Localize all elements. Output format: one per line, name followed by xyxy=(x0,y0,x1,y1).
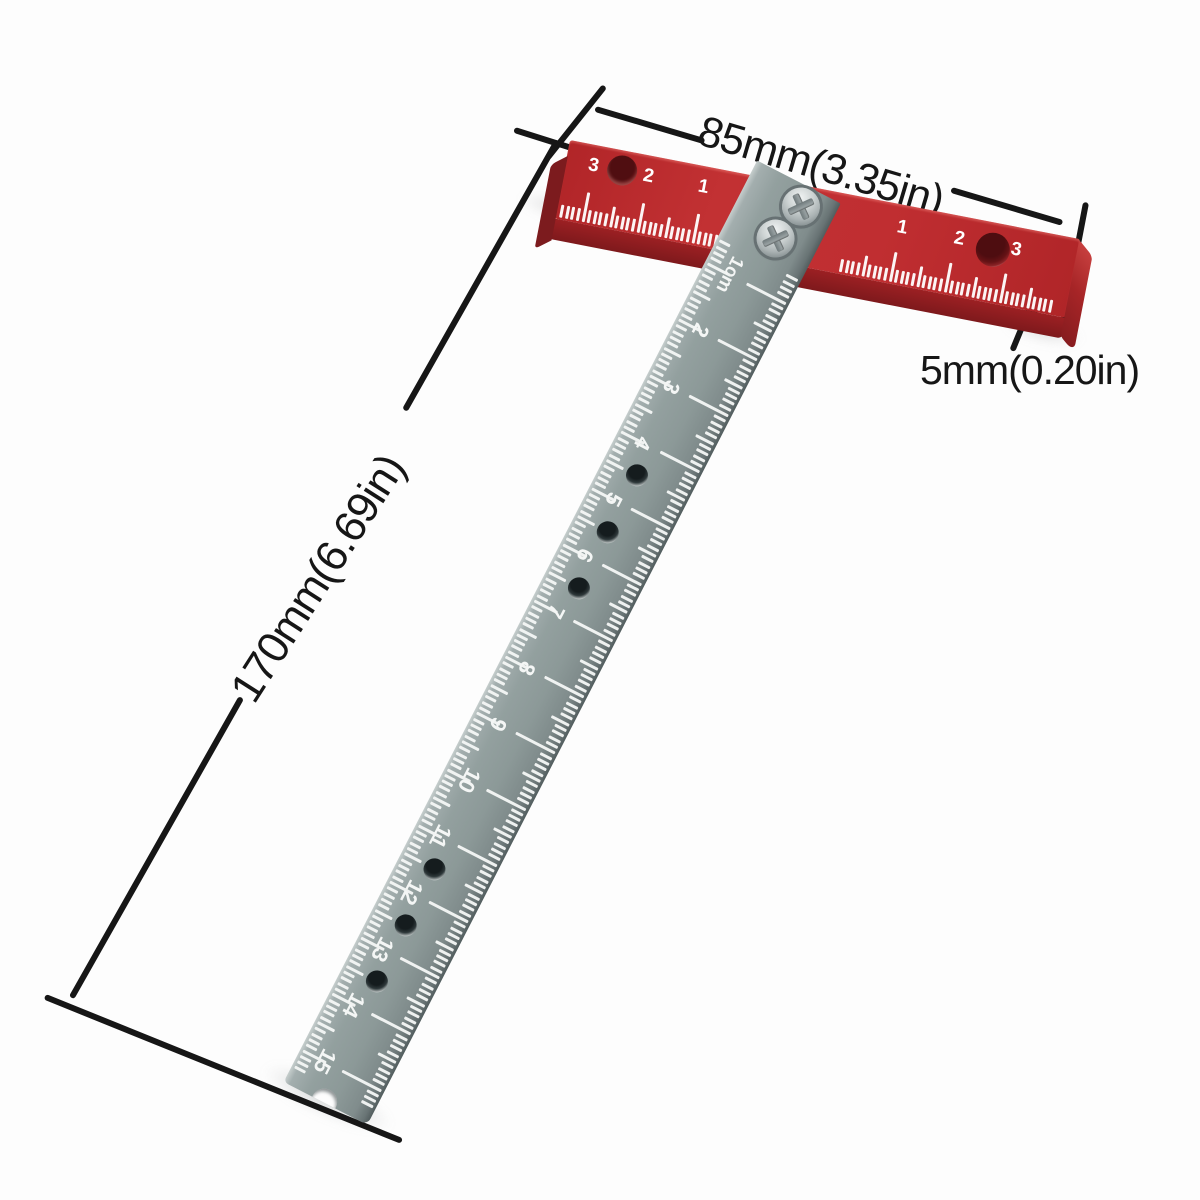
crossbar-tick xyxy=(675,227,680,240)
crossbar-scale-number: 1 xyxy=(895,216,910,240)
crossbar-tick xyxy=(976,286,981,299)
crossbar-tick xyxy=(850,261,855,274)
crossbar-tick xyxy=(877,266,882,279)
crossbar-tick xyxy=(587,210,592,223)
crossbar-tick xyxy=(620,216,625,229)
crossbar-tick xyxy=(680,228,685,241)
crossbar-tick xyxy=(592,211,597,224)
crossbar-tick xyxy=(866,264,871,277)
crossbar-tick xyxy=(642,221,647,234)
blade-hole xyxy=(391,911,421,941)
crossbar-tick xyxy=(1015,293,1020,306)
length-dim-line-upper xyxy=(402,139,560,412)
crossbar-tick xyxy=(1042,299,1047,312)
blade-hole xyxy=(593,517,623,547)
crossbar-tick xyxy=(905,272,910,285)
crossbar-tick xyxy=(686,229,691,242)
crossbar-tick xyxy=(883,268,888,281)
crossbar-tick xyxy=(653,223,658,236)
blade-tick-left xyxy=(294,1066,306,1074)
crossbar-tick xyxy=(647,222,652,235)
crossbar-tick xyxy=(894,270,899,283)
crossbar-tick xyxy=(708,233,713,246)
crossbar-tick xyxy=(669,226,674,239)
crossbar-tick xyxy=(960,282,965,295)
crossbar-tick xyxy=(1020,294,1025,307)
crossbar-tick xyxy=(603,213,608,226)
crossbar-tick xyxy=(993,289,998,302)
crossbar-tick xyxy=(1031,296,1036,309)
crossbar-tick xyxy=(576,208,581,221)
crossbar-tick xyxy=(839,259,844,272)
crossbar-tick xyxy=(697,231,702,244)
blade-scale-label: 5 xyxy=(599,488,628,511)
blade-hole xyxy=(420,854,450,884)
crossbar-tick xyxy=(910,273,915,286)
crossbar-tick xyxy=(702,232,707,245)
crossbar-tick xyxy=(631,218,636,231)
crossbar-tick xyxy=(899,271,904,284)
crossbar-scale-number: 3 xyxy=(586,154,601,178)
crossbar-tick xyxy=(565,206,570,219)
crossbar-scale-number: 1 xyxy=(696,176,711,200)
crossbar-hole-right xyxy=(973,230,1013,270)
crossbar-tick xyxy=(954,281,959,294)
crossbar-tick xyxy=(1004,291,1009,304)
length-dimension-label: 170mm(6.69in) xyxy=(222,447,415,711)
width-dim-line-left xyxy=(594,106,705,144)
blade-scale-label: 7 xyxy=(541,600,570,623)
crossbar-tick xyxy=(559,205,564,218)
crossbar-scale-number: 3 xyxy=(1009,238,1024,262)
crossbar-tick xyxy=(927,276,932,289)
blade-scale-label: 3 xyxy=(657,375,686,398)
thickness-dimension-label: 5mm(0.20in) xyxy=(920,348,1139,393)
crossbar-tick xyxy=(1037,297,1042,310)
blade-scale-label: 6 xyxy=(570,544,599,567)
crossbar-tick xyxy=(614,215,619,228)
blade-scale-label: 8 xyxy=(512,657,541,680)
crossbar-hole-left xyxy=(605,153,640,188)
crossbar-tick xyxy=(921,275,926,288)
blade-scale-label: 9 xyxy=(484,713,513,736)
crossbar-tick xyxy=(932,277,937,290)
crossbar-tick xyxy=(949,280,954,293)
crossbar-tick xyxy=(570,207,575,220)
blade-hole xyxy=(622,461,652,491)
crossbar-tick xyxy=(872,265,877,278)
crossbar-scale-number: 2 xyxy=(641,165,656,189)
crossbar-tick xyxy=(658,224,663,237)
crossbar-tick xyxy=(1048,300,1053,313)
crossbar-tick xyxy=(598,212,603,225)
ruler-blade: 1cm23456789101112131415 xyxy=(284,161,841,1125)
blade-scale-label: 4 xyxy=(628,432,657,455)
crossbar-tick xyxy=(855,262,860,275)
crossbar-tick xyxy=(987,288,992,301)
crossbar-tick xyxy=(844,260,849,273)
crossbar-tick xyxy=(982,287,987,300)
product-image: 85mm(3.35in) 5mm(0.20in) 170mm(6.69in) 1… xyxy=(0,0,1200,1200)
crossbar-tick xyxy=(1009,292,1014,305)
crossbar-scale-number: 2 xyxy=(952,227,967,251)
length-dim-line-lower xyxy=(69,696,244,999)
crossbar-tick xyxy=(938,278,943,291)
blade-hole xyxy=(362,967,392,997)
blade-scale-label: 2 xyxy=(686,319,715,342)
crossbar-tick xyxy=(965,284,970,297)
crossbar-tick xyxy=(625,217,630,230)
blade-hole xyxy=(564,573,594,603)
